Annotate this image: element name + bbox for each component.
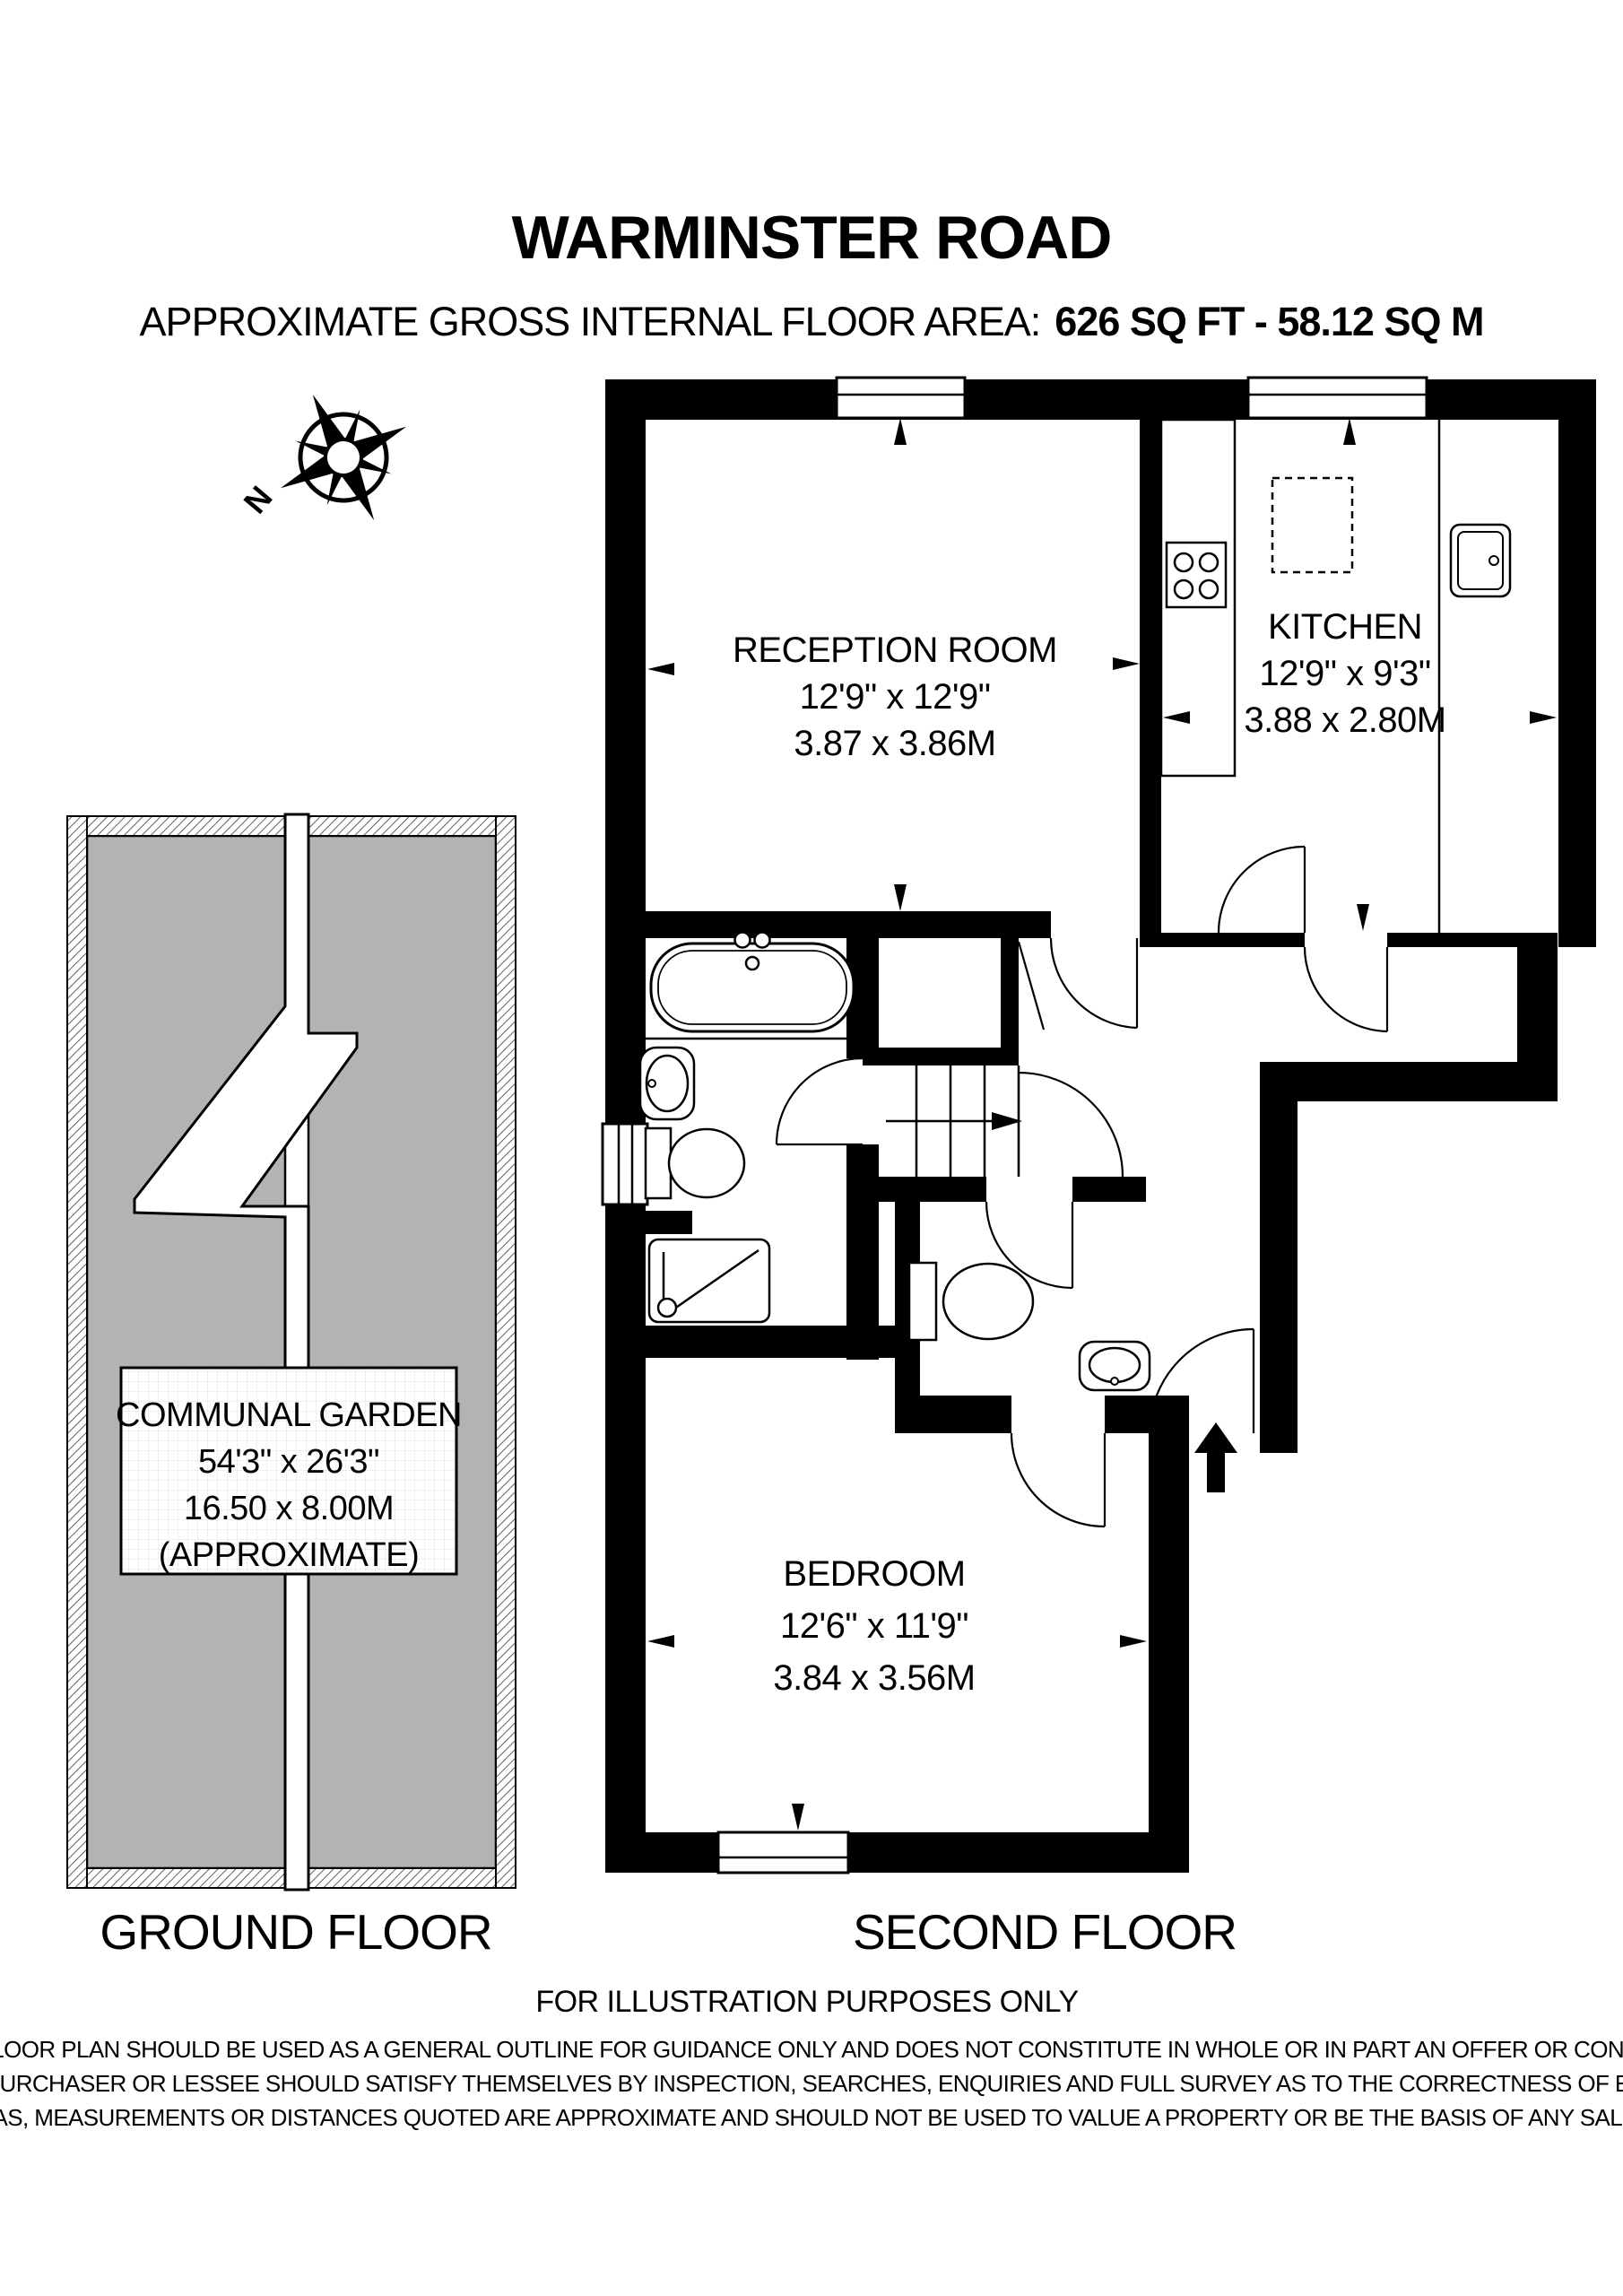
wall-bathroom-stub xyxy=(646,1211,692,1234)
garden-dim-imperial: 54'3" x 26'3" xyxy=(198,1443,379,1481)
wall-cupboard-right xyxy=(1001,938,1019,1048)
garden-wall-top-left xyxy=(87,816,285,836)
wall-step-right xyxy=(1298,1062,1558,1101)
door-kitchen xyxy=(1219,847,1305,933)
windows xyxy=(603,378,1427,1873)
kitchen-dim-metric: 3.88 x 2.80M xyxy=(1244,700,1445,740)
bedroom-dim-imperial: 12'6" x 11'9" xyxy=(780,1606,968,1646)
kitchen-dim-imperial: 12'9" x 9'3" xyxy=(1259,654,1430,693)
arrow-reception-right-icon xyxy=(1113,657,1140,670)
garden-wall-right xyxy=(496,816,516,1888)
arrow-kitchen-up-icon xyxy=(1343,418,1356,445)
header: WARMINSTER ROAD APPROXIMATE GROSS INTERN… xyxy=(140,204,1484,344)
garden-wall-bottom-left xyxy=(87,1868,285,1888)
arrow-bedroom-right-icon xyxy=(1120,1635,1147,1648)
door-bathroom xyxy=(777,1058,863,1144)
bedroom-dim-metric: 3.84 x 3.56M xyxy=(773,1658,975,1698)
compass-rose: N xyxy=(236,364,437,552)
floor-plan-page: WARMINSTER ROAD APPROXIMATE GROSS INTERN… xyxy=(0,0,1623,2296)
garden-wall-top-right xyxy=(308,816,496,836)
area-subtitle: APPROXIMATE GROSS INTERNAL FLOOR AREA:62… xyxy=(140,299,1484,344)
page-title: WARMINSTER ROAD xyxy=(512,204,1112,272)
second-floor-label: SECOND FLOOR xyxy=(853,1904,1237,1960)
wall-reception-kitchen-divider xyxy=(1140,414,1161,947)
arrow-kitchen-right-icon xyxy=(1530,711,1557,724)
arrow-reception-up-icon xyxy=(894,418,907,445)
garden-approx-note: (APPROXIMATE) xyxy=(159,1536,420,1574)
staircase xyxy=(886,1065,1022,1177)
disclaimer-line-3: ANY AREAS, MEASUREMENTS OR DISTANCES QUO… xyxy=(0,2104,1623,2131)
wc-fittings xyxy=(909,1263,1150,1390)
door-bedroom xyxy=(1011,1433,1105,1526)
wall-hall-bottom-left xyxy=(895,1396,1011,1433)
window-reception xyxy=(837,378,965,418)
ground-floor-plan: COMMUNAL GARDEN 54'3" x 26'3" 16.50 x 8.… xyxy=(67,814,516,1890)
wall-kitchen-bottom-left xyxy=(1161,933,1305,947)
window-bedroom xyxy=(718,1832,848,1873)
arrow-reception-down-icon xyxy=(894,884,907,911)
wall-bottom xyxy=(605,1832,1189,1873)
hob-icon xyxy=(1167,543,1226,607)
kitchen-name: KITCHEN xyxy=(1268,607,1422,647)
footer: GROUND FLOOR SECOND FLOOR FOR ILLUSTRATI… xyxy=(0,1904,1623,2131)
area-label: APPROXIMATE GROSS INTERNAL FLOOR AREA: xyxy=(140,299,1041,344)
wc-basin-icon xyxy=(1080,1342,1150,1390)
wall-bedroom-right xyxy=(1149,1396,1189,1873)
wall-wc-top-left xyxy=(863,1177,986,1202)
arrow-kitchen-left-icon xyxy=(1163,711,1190,724)
garden-label-box: COMMUNAL GARDEN 54'3" x 26'3" 16.50 x 8.… xyxy=(116,1368,462,1574)
disclaimer-line-1: THIS FLOOR PLAN SHOULD BE USED AS A GENE… xyxy=(0,2036,1623,2063)
arrow-kitchen-down-icon xyxy=(1357,904,1369,931)
ground-floor-label: GROUND FLOOR xyxy=(100,1904,491,1960)
reception-dim-imperial: 12'9" x 12'9" xyxy=(800,677,991,717)
wall-kitchen-right xyxy=(1558,379,1596,947)
bedroom-name: BEDROOM xyxy=(783,1554,965,1594)
walls xyxy=(605,379,1596,1873)
door-stairs xyxy=(1019,1073,1123,1177)
wall-hall-bottom-right xyxy=(1105,1396,1189,1433)
kitchen-sink-icon xyxy=(1451,525,1510,596)
wall-top xyxy=(605,379,1596,420)
window-bathroom xyxy=(603,1124,647,1205)
entrance-arrow-icon xyxy=(1194,1422,1237,1492)
garden-panel-right xyxy=(308,836,496,1868)
window-kitchen xyxy=(1248,378,1427,418)
garden-wall-left xyxy=(67,816,87,1888)
disclaimer-line-2: ANY INTENDING PURCHASER OR LESSEE SHOULD… xyxy=(0,2070,1623,2097)
basin-icon xyxy=(640,1048,694,1119)
garden-dim-metric: 16.50 x 8.00M xyxy=(184,1490,394,1527)
floor-plan-image: WARMINSTER ROAD APPROXIMATE GROSS INTERN… xyxy=(0,0,1623,2296)
wall-shower-bottom xyxy=(605,1326,920,1358)
wall-cupboard-bottom xyxy=(863,1048,1019,1065)
reception-name: RECEPTION ROOM xyxy=(733,631,1057,670)
illustration-note: FOR ILLUSTRATION PURPOSES ONLY xyxy=(535,1985,1078,2019)
wall-entry-side xyxy=(1260,1062,1298,1453)
arrow-bedroom-left-icon xyxy=(647,1635,674,1648)
door-vestibule xyxy=(1305,947,1387,1031)
appliance-space-dashed xyxy=(1272,478,1352,572)
compass-north-label: N xyxy=(236,479,279,520)
toilet-icon xyxy=(646,1128,744,1198)
garden-name: COMMUNAL GARDEN xyxy=(116,1396,462,1434)
reception-dim-metric: 3.87 x 3.86M xyxy=(794,724,995,763)
wall-wc-top-right xyxy=(1072,1177,1146,1202)
garden-panel-left xyxy=(87,836,285,1868)
second-floor-plan: RECEPTION ROOM 12'9" x 12'9" 3.87 x 3.86… xyxy=(603,378,1596,1873)
bathtub-icon xyxy=(651,933,854,1032)
wc-toilet-icon xyxy=(909,1263,1033,1340)
door-reception xyxy=(1051,938,1137,1028)
door-cupboard xyxy=(1019,942,1044,1030)
area-value: 626 SQ FT - 58.12 SQ M xyxy=(1055,299,1483,344)
arrow-reception-left-icon xyxy=(647,663,674,675)
arrow-bedroom-down-icon xyxy=(792,1804,804,1831)
shower-icon xyxy=(649,1239,769,1322)
room-labels: RECEPTION ROOM 12'9" x 12'9" 3.87 x 3.86… xyxy=(733,607,1446,1698)
garden-wall-bottom-right xyxy=(308,1868,496,1888)
bathroom-fittings xyxy=(640,933,854,1323)
